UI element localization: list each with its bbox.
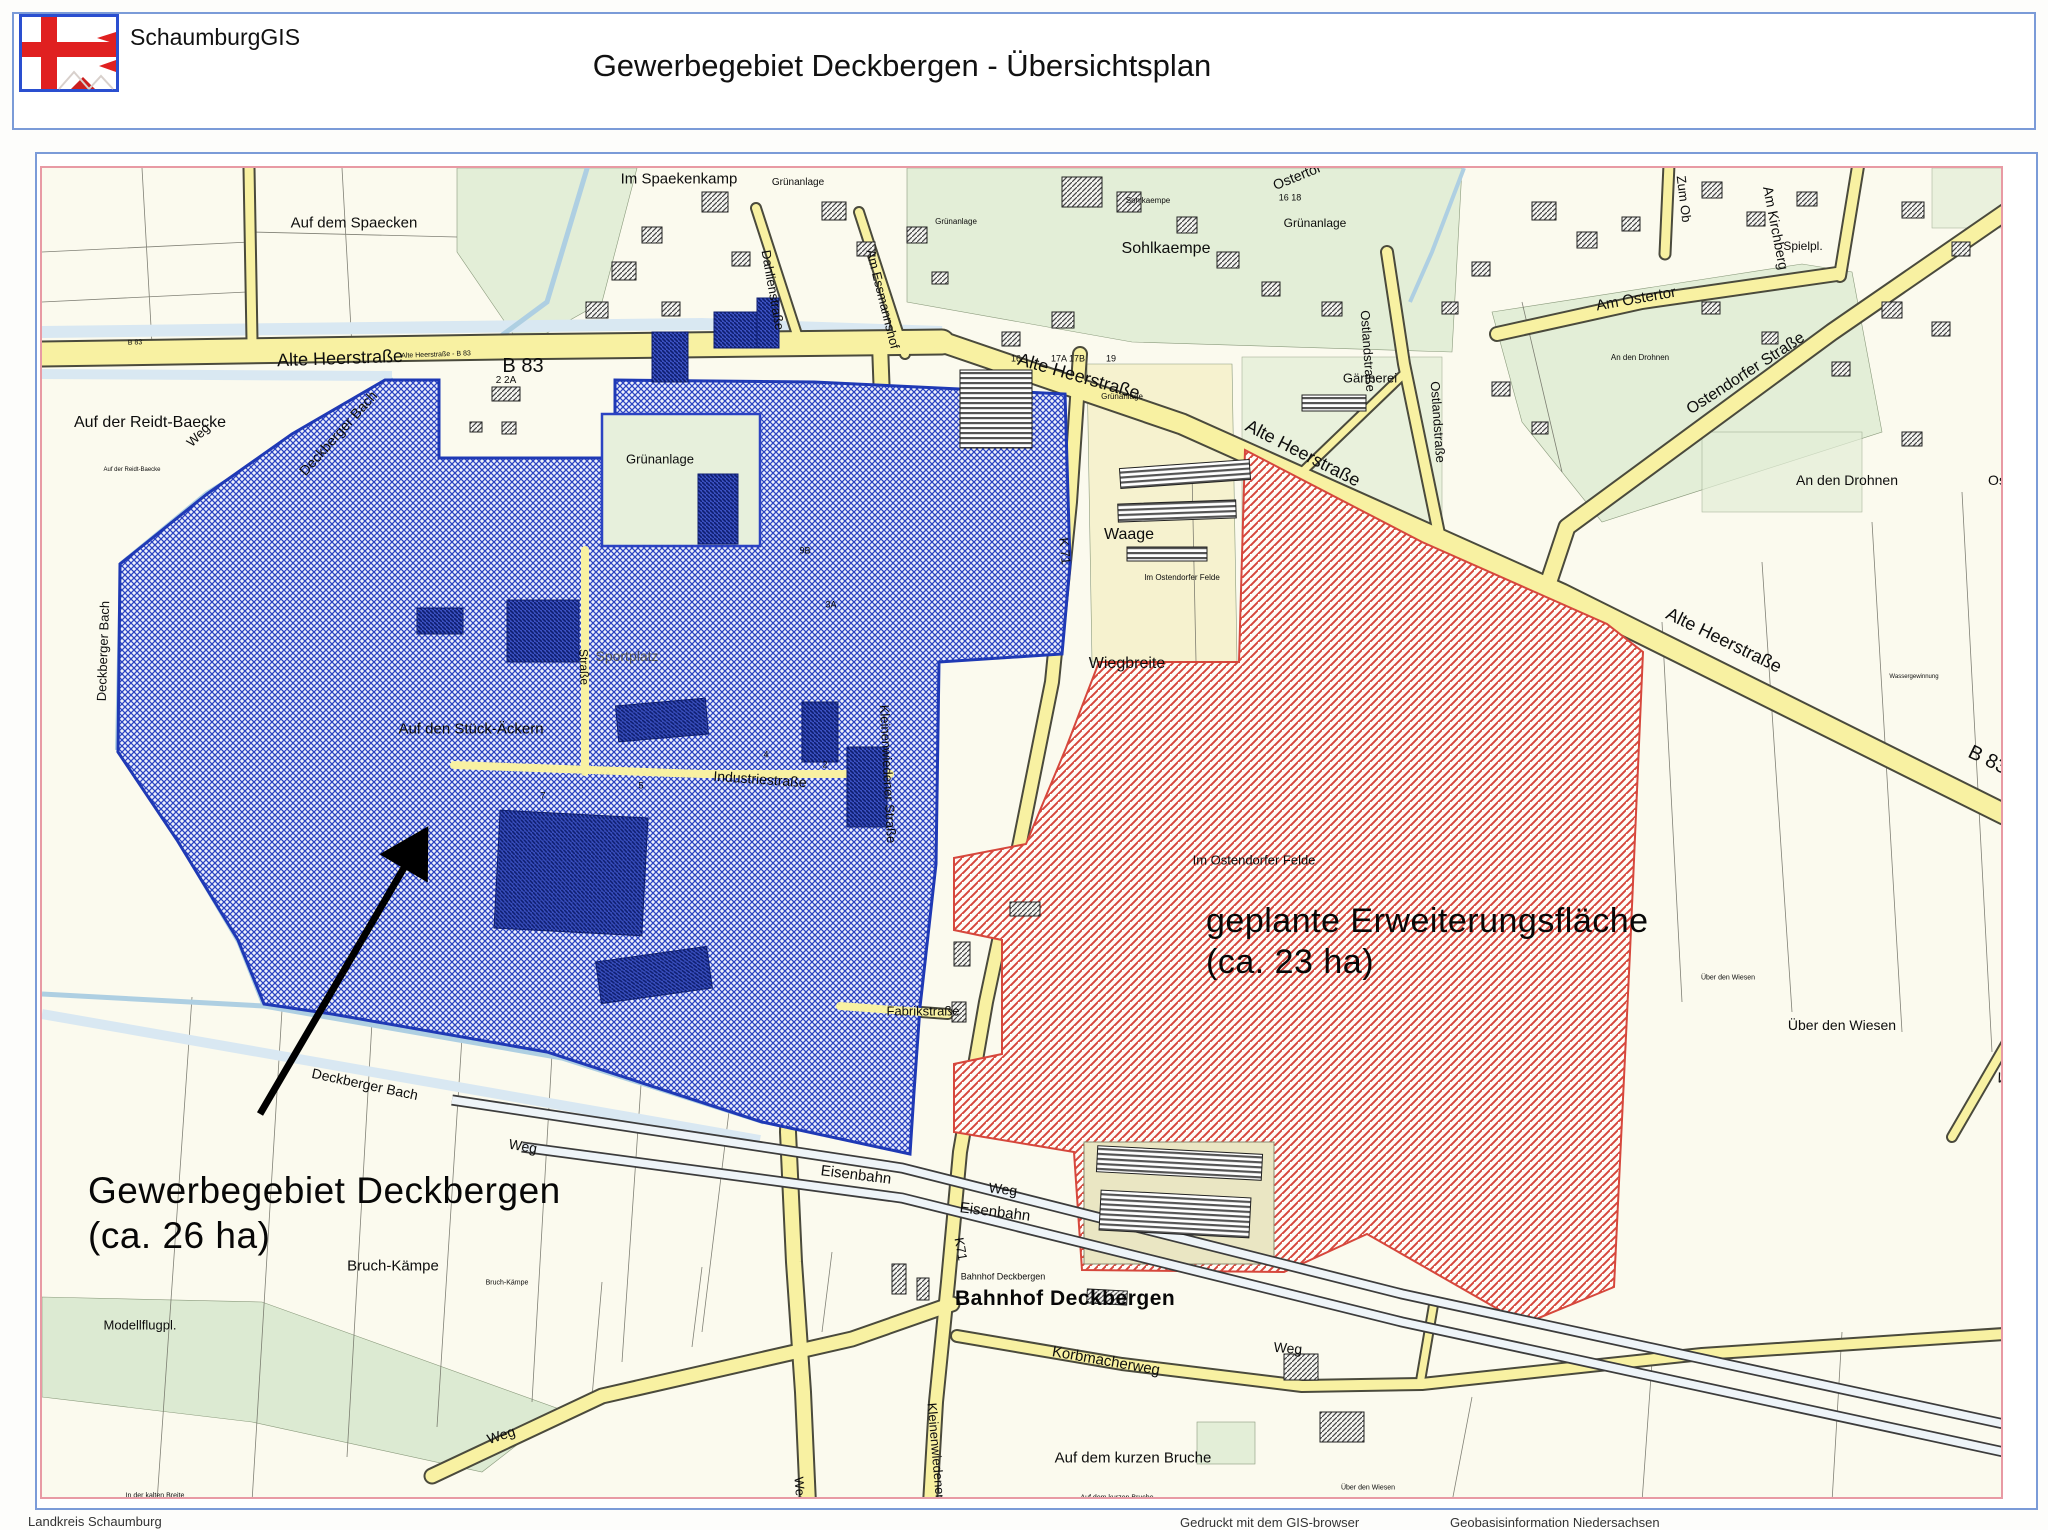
- site-area-polygon: [118, 380, 1070, 1154]
- expansion-area-label: geplante Erweiterungsfläche (ca. 23 ha): [1206, 901, 1649, 984]
- page-title: Gewerbegebiet Deckbergen - Übersichtspla…: [532, 48, 1272, 84]
- header-box: SchaumburgGIS Gewerbegebiet Deckbergen -…: [12, 12, 2036, 130]
- footer-source-text: Geobasisinformation Niedersachsen: [1450, 1515, 1660, 1530]
- map-canvas[interactable]: Im SpaekenkampGrünanlageAuf dem Spaecken…: [40, 166, 2003, 1499]
- schaumburg-logo-icon: [19, 14, 119, 92]
- site-area-label: Gewerbegebiet Deckbergen (ca. 26 ha): [88, 1168, 561, 1258]
- footer-left-text: Landkreis Schaumburg: [28, 1514, 162, 1529]
- station-label: Bahnhof Deckbergen: [955, 1286, 1175, 1312]
- footer-print-text: Gedruckt mit dem GIS-browser: [1180, 1515, 1359, 1530]
- page: { "header": { "app_name": "SchaumburgGIS…: [0, 0, 2048, 1526]
- map-frame: Im SpaekenkampGrünanlageAuf dem Spaecken…: [35, 152, 2038, 1510]
- app-name: SchaumburgGIS: [130, 24, 300, 51]
